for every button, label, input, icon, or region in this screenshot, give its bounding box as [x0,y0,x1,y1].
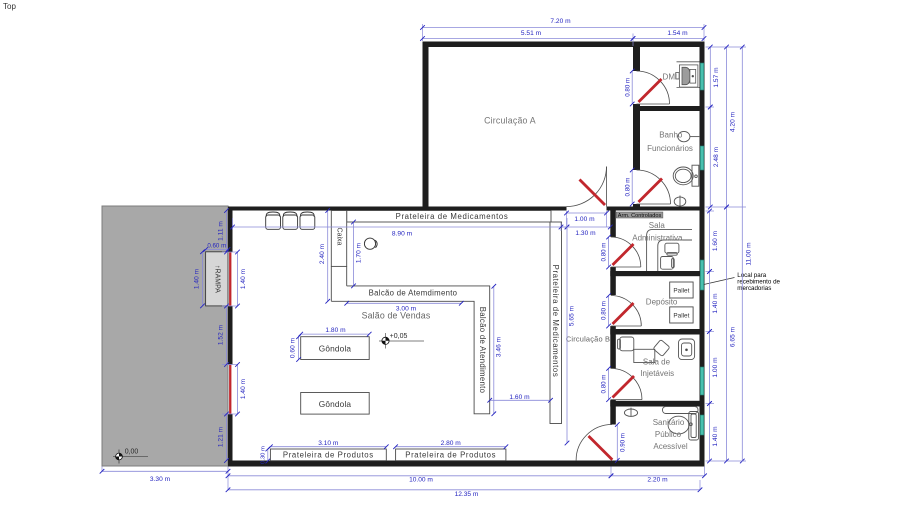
svg-text:0.80 m: 0.80 m [624,178,631,197]
svg-text:DML: DML [663,73,680,82]
svg-text:Circulação B: Circulação B [566,335,610,344]
svg-text:1.40 m: 1.40 m [712,293,719,314]
svg-text:1.40 m: 1.40 m [240,378,247,399]
svg-text:Sanitário: Sanitário [653,418,685,427]
svg-text:1.54 m: 1.54 m [667,30,688,37]
svg-text:Top: Top [3,2,16,11]
svg-text:7.20 m: 7.20 m [550,18,571,25]
svg-text:Gôndola: Gôndola [319,399,352,409]
svg-text:Banho: Banho [659,131,683,140]
svg-text:Sala de: Sala de [643,357,671,366]
svg-text:1.70 m: 1.70 m [355,242,362,263]
svg-text:3.46 m: 3.46 m [496,336,503,357]
svg-text:Prateleira de Produtos: Prateleira de Produtos [283,451,374,460]
svg-text:Pallet: Pallet [673,288,689,295]
svg-text:Administrativa: Administrativa [632,233,683,242]
svg-text:2.20 m: 2.20 m [647,476,668,483]
svg-text:1.40 m: 1.40 m [712,426,719,447]
svg-text:0.60 m: 0.60 m [207,242,226,249]
svg-text:1.40 m: 1.40 m [240,268,247,289]
svg-text:2.40 m: 2.40 m [319,243,326,264]
svg-text:0.90 m: 0.90 m [619,433,626,452]
svg-text:Prateleira de Medicamentos: Prateleira de Medicamentos [396,212,509,221]
svg-text:5.51 m: 5.51 m [521,30,542,37]
svg-text:+0,05: +0,05 [390,333,408,340]
svg-text:0.80 m: 0.80 m [600,243,607,262]
svg-text:4.20 m: 4.20 m [730,111,737,132]
svg-text:1.00 m: 1.00 m [712,357,719,378]
svg-text:Depósito: Depósito [646,297,678,306]
svg-text:1.40 m: 1.40 m [194,268,201,289]
svg-text:0,00: 0,00 [125,449,139,456]
svg-text:0.30 m: 0.30 m [261,446,267,464]
svg-text:Público: Público [655,430,682,439]
svg-text:3.10 m: 3.10 m [318,440,339,447]
svg-text:Sala: Sala [649,221,666,230]
svg-text:6.65 m: 6.65 m [730,326,737,347]
svg-text:Circulação A: Circulação A [484,116,536,126]
svg-text:10.00 m: 10.00 m [409,476,433,483]
svg-text:12.35 m: 12.35 m [455,491,479,498]
svg-text:1.21 m: 1.21 m [218,426,225,447]
svg-text:1.52 m: 1.52 m [218,324,225,345]
svg-text:2.80 m: 2.80 m [441,440,462,447]
svg-text:Prateleira de Produtos: Prateleira de Produtos [405,451,496,460]
svg-text:1.60 m: 1.60 m [712,230,719,251]
svg-text:0.80 m: 0.80 m [600,301,607,320]
svg-text:↑RAMPA: ↑RAMPA [213,265,220,293]
svg-text:3.00 m: 3.00 m [396,305,417,312]
svg-text:2.48 m: 2.48 m [713,146,720,167]
svg-text:0.60 m: 0.60 m [290,337,297,358]
svg-text:1.30 m: 1.30 m [575,230,596,237]
svg-text:Pallet: Pallet [673,313,689,320]
svg-text:3.30 m: 3.30 m [150,476,171,483]
svg-text:1.00 m: 1.00 m [574,216,595,223]
svg-text:8.90 m: 8.90 m [392,231,413,238]
svg-text:0.80 m: 0.80 m [601,375,608,394]
svg-text:Prateleira de Medicamentos: Prateleira de Medicamentos [551,265,560,378]
svg-text:1.57 m: 1.57 m [713,67,720,88]
svg-text:1.80 m: 1.80 m [325,327,346,334]
svg-text:Balcão de Atendimento: Balcão de Atendimento [478,307,487,394]
svg-text:1.11 m: 1.11 m [218,221,225,241]
svg-text:1.60 m: 1.60 m [509,394,530,401]
svg-text:Acessível: Acessível [653,442,687,451]
svg-text:Balcão de Atemdimento: Balcão de Atemdimento [369,289,458,298]
svg-text:Injetáveis: Injetáveis [640,369,674,378]
svg-text:Arm. Controlados: Arm. Controlados [618,213,662,219]
svg-text:Funcionários: Funcionários [647,144,693,153]
svg-text:5.65 m: 5.65 m [569,305,576,326]
svg-text:Gôndola: Gôndola [319,344,352,354]
svg-text:11.00 m: 11.00 m [746,242,753,266]
svg-text:0.80 m: 0.80 m [624,78,631,97]
svg-text:Caixa: Caixa [336,228,343,246]
